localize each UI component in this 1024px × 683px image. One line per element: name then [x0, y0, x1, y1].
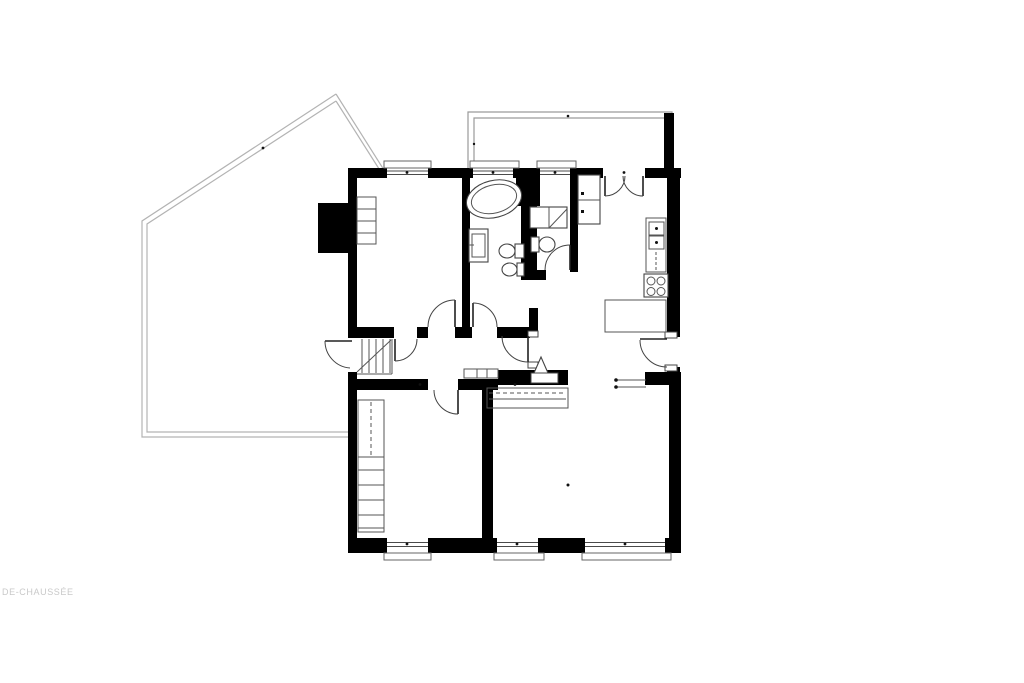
terrace-outline — [142, 94, 384, 437]
hall-closet — [578, 175, 600, 224]
toilet — [499, 244, 524, 258]
floor-plan-page: DE-CHAUSSÉE — [0, 0, 1024, 683]
washbasin — [469, 229, 488, 262]
walls — [318, 113, 681, 553]
radiator-line — [614, 378, 646, 389]
wc-toilet — [531, 237, 555, 252]
wardrobe-shelves — [358, 400, 384, 532]
bidet — [502, 263, 524, 276]
plan-marks — [567, 484, 570, 487]
stair-door — [395, 339, 417, 361]
kitchen-counter — [605, 300, 666, 332]
bedroom-bottom-door — [434, 390, 458, 414]
floor-label: DE-CHAUSSÉE — [2, 587, 74, 597]
bedroom-top-door — [428, 300, 455, 327]
oven-column — [646, 218, 666, 272]
floor-plan-drawing — [0, 0, 1024, 683]
bedroom-shelf — [357, 197, 376, 244]
terrace-door — [325, 341, 352, 368]
hall-shelf — [464, 369, 498, 378]
bathroom-door — [473, 303, 497, 327]
kitchen-terrace-door — [640, 332, 677, 371]
built-in-wardrobe — [487, 388, 568, 408]
cooktop — [644, 274, 668, 297]
chimney — [318, 203, 356, 253]
entry-double-door — [605, 176, 643, 196]
balcony-outline — [468, 112, 672, 168]
staircase — [357, 339, 392, 374]
washing-machine — [530, 207, 567, 228]
